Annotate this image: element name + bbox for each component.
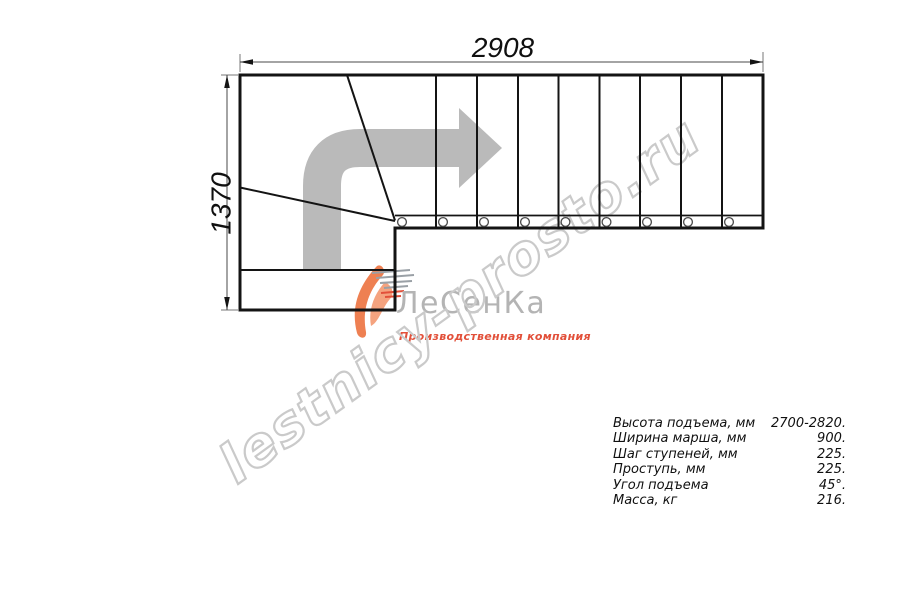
spec-label: Ширина марша, мм [613,431,746,446]
spec-value: 225. [817,447,846,462]
tread-mount-hole [521,218,530,227]
stair-drawing-page: 2908 1370 ЛеСенКа [0,0,900,600]
tread-mount-hole [684,218,693,227]
specs-table: Высота подъема, мм 2700-2820. Ширина мар… [613,416,846,508]
dimension-left: 1370 [206,75,239,310]
spec-row: Угол подъема 45°. [613,478,846,493]
spec-label: Масса, кг [613,493,677,508]
spec-value: 2700-2820. [771,416,846,431]
tread-mount-hole [480,218,489,227]
tread-mount-hole [643,218,652,227]
tread-mount-hole [398,218,407,227]
tread-mount-hole [561,218,570,227]
dimension-arrow-right [750,59,763,65]
spec-row: Масса, кг 216. [613,493,846,508]
stair-plan-drawing: 2908 1370 [0,0,900,600]
spec-label: Высота подъема, мм [613,416,755,431]
spec-value: 225. [817,462,846,477]
dimension-height-label: 1370 [206,172,237,235]
spec-label: Угол подъема [613,478,709,493]
tread-mount-hole [602,218,611,227]
dimension-top: 2908 [240,32,763,72]
spec-value: 900. [817,431,846,446]
dimension-arrow-left [240,59,253,65]
spec-row: Ширина марша, мм 900. [613,431,846,446]
tread-mount-hole [439,218,448,227]
spec-row: Высота подъема, мм 2700-2820. [613,416,846,431]
spec-value: 45°. [819,478,846,493]
dimension-arrow-top [224,75,230,88]
direction-arrow-head [459,108,502,188]
spec-row: Шаг ступеней, мм 225. [613,447,846,462]
tread-mount-hole [725,218,734,227]
spec-value: 216. [817,493,846,508]
dimension-width-label: 2908 [471,32,535,63]
spec-label: Шаг ступеней, мм [613,447,738,462]
spec-label: Проступь, мм [613,462,705,477]
dimension-arrow-bottom [224,297,230,310]
spec-row: Проступь, мм 225. [613,462,846,477]
direction-arrow-icon [322,108,502,270]
